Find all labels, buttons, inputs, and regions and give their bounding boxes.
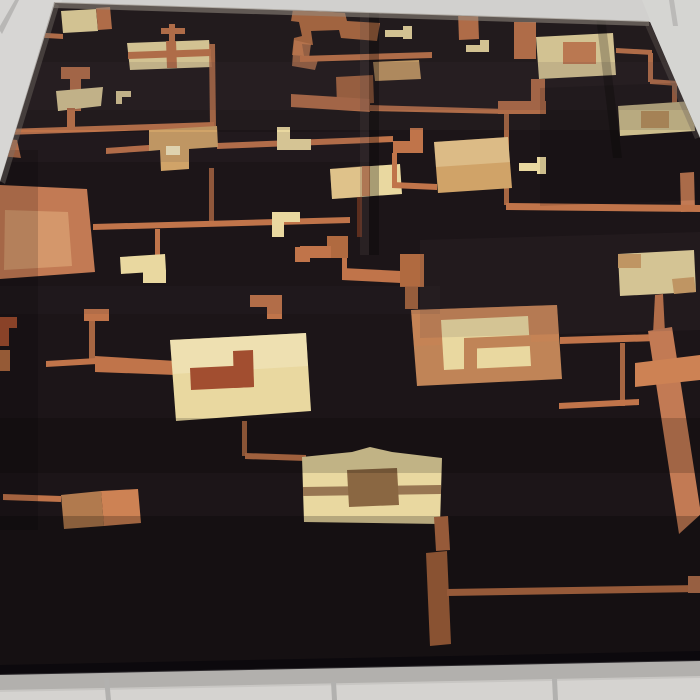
tile-grout-bottom-3 [552, 679, 558, 700]
line-x213-lower [209, 168, 214, 223]
sheen-band-295 [0, 286, 440, 314]
bottom-cream-square [347, 468, 399, 507]
dark-bottom [0, 516, 700, 676]
line-x395 [392, 153, 397, 186]
cream-L-213-v [272, 212, 284, 237]
left-dark [0, 150, 38, 530]
line-x622 [620, 343, 625, 406]
rug-photograph [0, 0, 700, 700]
sq-T-light [434, 137, 510, 167]
cream-block-125-leg [143, 270, 166, 283]
elbow-395-h [393, 141, 423, 153]
fold-shadow [369, 0, 379, 255]
dark-band-430 [0, 418, 700, 473]
tee-line-92 [89, 321, 95, 362]
tile-grout-bottom-2 [331, 682, 337, 700]
sheen-band-140 [0, 132, 370, 162]
cream-S-shade [330, 166, 363, 199]
sheen-right-280 [420, 232, 700, 338]
big-right-tan-v [464, 338, 477, 370]
elbow-A1-h [300, 246, 331, 258]
rust-L-inner-v [233, 350, 254, 388]
scene-canvas [0, 0, 700, 700]
fold-light [360, 0, 369, 255]
center-dark [540, 82, 700, 206]
